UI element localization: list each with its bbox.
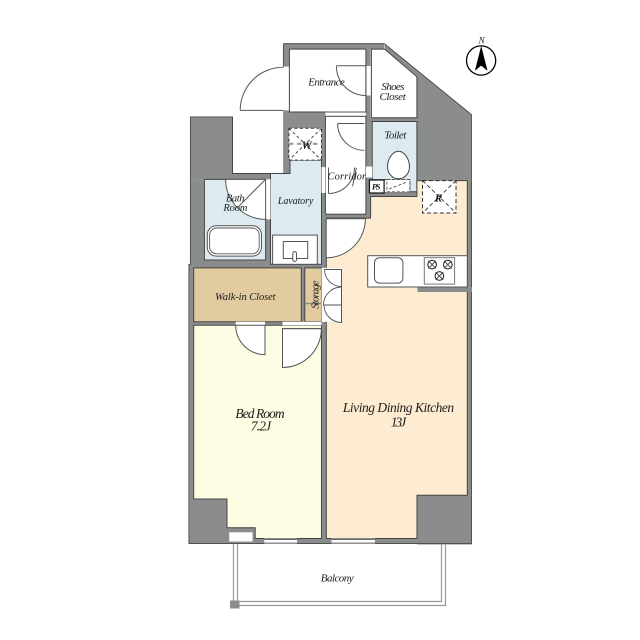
svg-text:R: R: [434, 192, 442, 204]
svg-text:Room: Room: [222, 203, 247, 214]
svg-text:Toilet: Toilet: [384, 130, 407, 142]
svg-text:Corridor: Corridor: [328, 172, 368, 183]
svg-text:W: W: [302, 140, 313, 152]
svg-text:13J: 13J: [391, 414, 408, 429]
svg-text:PS: PS: [372, 182, 381, 192]
svg-text:Closet: Closet: [379, 91, 406, 103]
svg-text:Living Dining Kitchen: Living Dining Kitchen: [342, 400, 455, 415]
svg-text:Walk-in Closet: Walk-in Closet: [215, 292, 277, 303]
svg-text:N: N: [478, 35, 486, 45]
svg-text:Storage: Storage: [311, 280, 322, 309]
svg-text:Balcony: Balcony: [321, 572, 354, 584]
svg-text:Entrance: Entrance: [307, 77, 345, 89]
svg-text:Lavatory: Lavatory: [277, 196, 314, 207]
svg-text:7.2J: 7.2J: [251, 419, 272, 434]
